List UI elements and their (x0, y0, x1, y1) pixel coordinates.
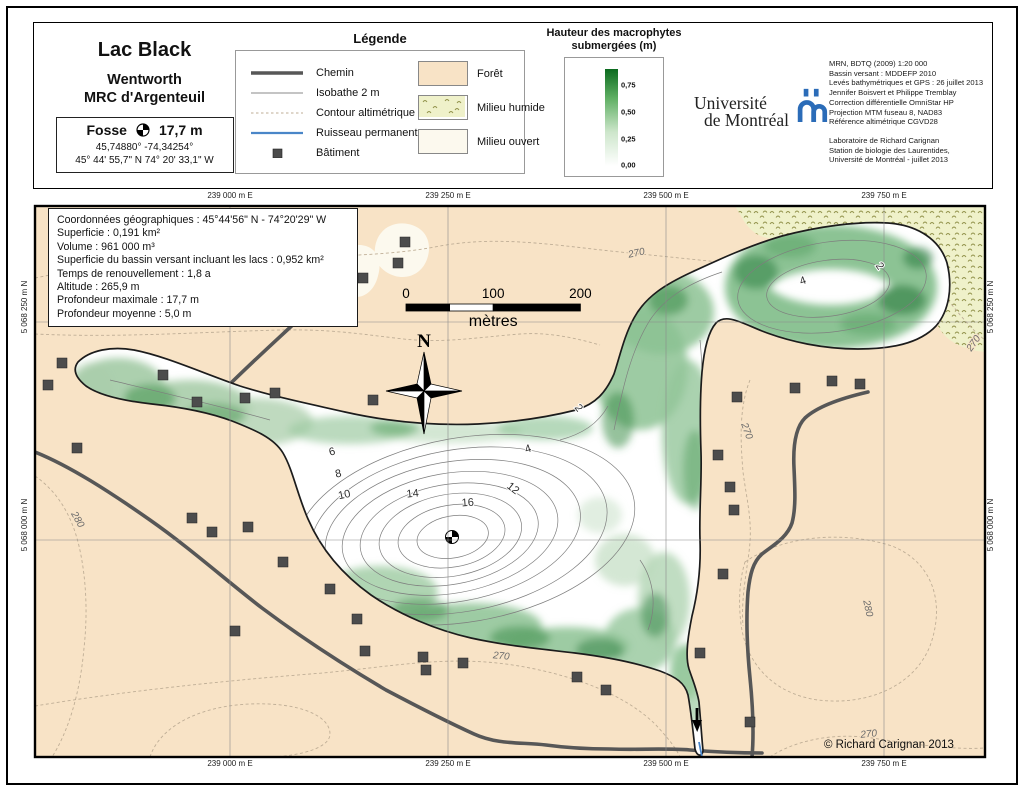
lake-stat-line: Superficie : 0,191 km² (57, 227, 349, 240)
svg-text:239 000 m E: 239 000 m E (207, 759, 252, 768)
page-title: Lac Black (42, 39, 247, 62)
legend-item-label: Bâtiment (316, 147, 359, 159)
legend-item-label: Isobathe 2 m (316, 87, 380, 99)
municipality-label: Wentworth (42, 71, 247, 89)
svg-text:N: N (417, 331, 431, 352)
fosse-box: Fosse 17,7 m 45,74880° -74,34254° 45° 44… (56, 117, 234, 173)
legend-item-stream: Ruisseau permanent (248, 123, 418, 143)
macrophyte-scale: Hauteur des macrophytes submergées (m) 0… (528, 27, 700, 177)
credit-line: Station de biologie des Laurentides, (829, 146, 989, 156)
svg-text:239 750 m E: 239 750 m E (861, 759, 906, 768)
lake-stats-box: Coordonnées géographiques : 45°44'56" N … (48, 208, 358, 327)
fosse-marker-icon (446, 531, 459, 544)
svg-text:14: 14 (406, 487, 419, 500)
contour-symbol-icon (248, 109, 306, 117)
svg-text:5 068 000 m N: 5 068 000 m N (986, 499, 995, 552)
colorbar-tick-label: 0,50 (621, 107, 636, 116)
svg-text:239 500 m E: 239 500 m E (643, 759, 688, 768)
macro-scale-title-line1: Hauteur des macrophytes (528, 27, 700, 40)
legend-item-isobath: Isobathe 2 m (248, 83, 418, 103)
svg-text:239 500 m E: 239 500 m E (643, 191, 688, 200)
credit-line: Laboratoire de Richard Carignan (829, 136, 989, 146)
legend-item-label: Chemin (316, 67, 354, 79)
credit-line: Bassin versant : MDDEFP 2010 (829, 69, 989, 79)
legend-item-road: Chemin (248, 63, 418, 83)
lake-stat-line: Temps de renouvellement : 1,8 a (57, 268, 349, 281)
svg-text:10: 10 (337, 488, 351, 502)
svg-text:5 068 250 m N: 5 068 250 m N (20, 281, 29, 334)
lake-stat-line: Profondeur moyenne : 5,0 m (57, 308, 349, 321)
lake-stat-line: Profondeur maximale : 17,7 m (57, 294, 349, 307)
title-block: Lac Black Wentworth MRC d'Argenteuil Fos… (42, 31, 247, 173)
svg-text:5 068 000 m N: 5 068 000 m N (20, 499, 29, 552)
university-name-line2: de Montréal (704, 112, 789, 129)
credit-line: Jennifer Boisvert et Philippe Tremblay (829, 88, 989, 98)
fosse-label: Fosse (86, 122, 126, 138)
fosse-icon (136, 123, 150, 137)
university-logo: Université de Montréal (679, 85, 829, 129)
credits-laboratory: Laboratoire de Richard CarignanStation d… (829, 136, 989, 165)
credit-line: Correction différentielle OmniStar HP (829, 98, 989, 108)
svg-text:mètres: mètres (469, 313, 518, 330)
lake-stat-line: Superficie du bassin versant incluant le… (57, 254, 349, 267)
copyright: © Richard Carignan 2013 (824, 739, 954, 751)
legend-item-wetland: Milieu humide (418, 95, 545, 120)
macro-scale-title-line2: submergées (m) (528, 40, 700, 53)
wetland-swatch-icon (418, 95, 468, 120)
colorbar-tick-label: 0,75 (621, 80, 636, 89)
coords-dms: 45° 44' 55,7" N 74° 20' 33,1" W (59, 155, 231, 168)
legend-item-building: Bâtiment (248, 143, 418, 163)
svg-text:100: 100 (482, 286, 505, 301)
svg-text:239 000 m E: 239 000 m E (207, 191, 252, 200)
legend-item-forest: Forêt (418, 61, 545, 86)
credit-line: Projection MTM fuseau 8, NAD83 (829, 108, 989, 118)
colorbar-tick-label: 0,00 (621, 160, 636, 169)
colorbar-tick-label: 0,25 (621, 134, 636, 143)
credit-line: Levés bathymétriques et GPS : 26 juillet… (829, 78, 989, 88)
svg-text:16: 16 (461, 497, 474, 510)
credits-sources: MRN, BDTQ (2009) 1:20 000Bassin versant … (829, 59, 989, 127)
coords-decimal: 45,74880° -74,34254° (59, 142, 231, 155)
legend-item-contour: Contour altimétrique (248, 103, 418, 123)
lake-stat-line: Altitude : 265,9 m (57, 281, 349, 294)
macro-colorbar-gradient (605, 69, 618, 166)
legend-item-label: Forêt (477, 68, 503, 80)
legend-box: CheminIsobathe 2 mContour altimétriqueRu… (235, 50, 525, 174)
stream-symbol-icon (248, 129, 306, 137)
legend-item-label: Contour altimétrique (316, 107, 415, 119)
legend-item-label: Ruisseau permanent (316, 127, 418, 139)
svg-text:© Richard Carignan 2013: © Richard Carignan 2013 (824, 739, 954, 751)
legend: Légende CheminIsobathe 2 mContour altimé… (235, 31, 525, 174)
lake-stat-line: Coordonnées géographiques : 45°44'56" N … (57, 214, 349, 227)
mrc-label: MRC d'Argenteuil (42, 89, 247, 107)
road-symbol-icon (248, 69, 306, 77)
map-sheet: 68101416124242270270280270280270270N 010… (0, 0, 1024, 791)
building-symbol-icon (248, 148, 306, 158)
isobath-symbol-icon (248, 89, 306, 97)
fosse-depth-value: 17,7 m (159, 122, 203, 138)
legend-item-open: Milieu ouvert (418, 129, 545, 154)
svg-text:200: 200 (569, 286, 592, 301)
map-header: Lac Black Wentworth MRC d'Argenteuil Fos… (33, 22, 993, 189)
svg-text:239 250 m E: 239 250 m E (425, 759, 470, 768)
svg-text:5 068 250 m N: 5 068 250 m N (986, 281, 995, 334)
legend-title: Légende (235, 31, 525, 46)
open-swatch-icon (418, 129, 468, 154)
credit-line: Université de Montréal - juillet 2013 (829, 155, 989, 165)
svg-text:239 250 m E: 239 250 m E (425, 191, 470, 200)
credits-block: MRN, BDTQ (2009) 1:20 000Bassin versant … (829, 59, 989, 174)
macro-colorbar-box: 0,750,500,250,00 (564, 57, 664, 177)
svg-text:239 750 m E: 239 750 m E (861, 191, 906, 200)
udem-logo-icon (795, 85, 829, 125)
credit-line: MRN, BDTQ (2009) 1:20 000 (829, 59, 989, 69)
svg-text:0: 0 (402, 286, 410, 301)
lake-stat-line: Volume : 961 000 m³ (57, 241, 349, 254)
forest-swatch-icon (418, 61, 468, 86)
credit-line: Référence altimétrique CGVD28 (829, 117, 989, 127)
svg-text:270: 270 (491, 650, 510, 663)
